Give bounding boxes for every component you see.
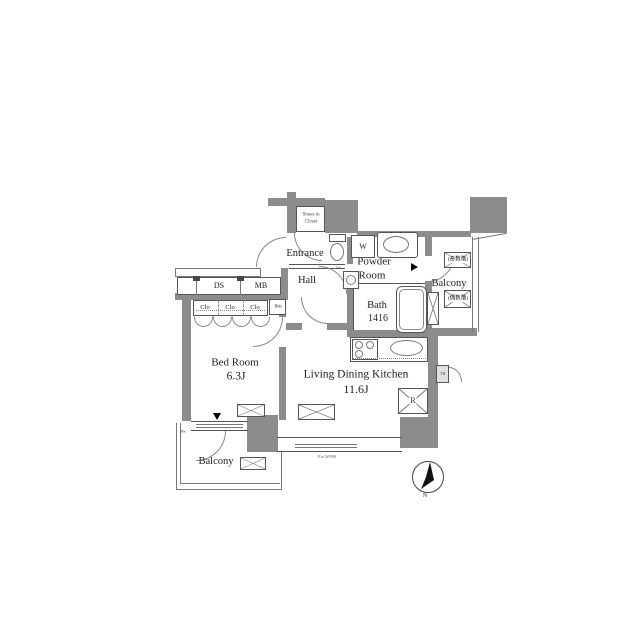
toilet-bowl <box>330 243 344 261</box>
access-marker <box>411 263 418 271</box>
crossed-box <box>237 404 265 417</box>
washbasin-bowl <box>346 275 356 285</box>
wall <box>281 268 288 300</box>
stove-burner <box>355 341 363 349</box>
pillar <box>325 200 358 233</box>
cross-mark <box>428 293 438 324</box>
fix-window-label: Fix W990 <box>318 455 336 460</box>
trunk-label: TR <box>440 372 445 376</box>
window-line <box>196 424 243 425</box>
closet-label-1: Clo <box>200 305 209 312</box>
window-line <box>295 447 357 448</box>
counter-edge <box>352 358 426 359</box>
ldk-door-arc <box>301 297 328 324</box>
crossed-box <box>298 404 335 420</box>
cross-mark <box>241 458 265 469</box>
trunk-door-arc <box>449 367 462 382</box>
ldk-label: Living Dining Kitchen <box>304 369 409 381</box>
bedroom-size-label: 6.3J <box>227 371 246 383</box>
toilet-tank <box>329 234 346 242</box>
fridge-label: R <box>409 397 416 405</box>
balcony-rail <box>478 237 479 332</box>
shoes-closet-label-2: Closet <box>305 220 318 225</box>
bath-size-label: 1416 <box>368 314 388 324</box>
cross-mark <box>238 405 264 416</box>
compass-north-label: N <box>423 493 427 499</box>
cross-mark <box>299 405 334 419</box>
balcony-rail <box>180 423 181 484</box>
bath-label: Bath <box>367 301 387 312</box>
balcony-rail <box>176 489 282 490</box>
entrance-label: Entrance <box>286 249 323 260</box>
wall <box>425 237 432 256</box>
pillar <box>247 415 278 452</box>
bath-partition <box>353 283 354 330</box>
kitchen-sink <box>390 340 423 356</box>
post <box>193 276 200 281</box>
balcony-left-label: Balcony <box>199 457 234 468</box>
meter-box-label: MB <box>255 282 267 290</box>
pillar <box>470 197 507 233</box>
stove-burner <box>355 350 363 358</box>
hatch-even-label: (偶数階) <box>448 296 468 302</box>
balcony-rail <box>180 483 280 484</box>
wall <box>287 192 296 233</box>
closet-divider <box>243 300 244 316</box>
wall <box>400 417 438 448</box>
hatch-odd-label: (奇数階) <box>448 257 468 263</box>
window-line <box>196 427 243 428</box>
balcony-right-label: Balcony <box>432 279 467 290</box>
closet-divider <box>218 300 219 316</box>
window-line <box>295 444 357 445</box>
bath-partition <box>353 283 425 284</box>
balcony-hatch <box>240 457 266 470</box>
washer-label: W <box>359 243 367 251</box>
balcony-edge <box>281 452 282 490</box>
duct-space-label: DS <box>214 282 224 290</box>
wall <box>182 300 191 421</box>
closet-label-3: Clo <box>250 305 259 312</box>
powder-room-label-2: Room <box>359 271 386 282</box>
balcony-rail <box>176 423 177 490</box>
pipe-space-label: PS <box>180 430 185 435</box>
wall <box>279 347 286 420</box>
bathtub-inner <box>399 289 424 330</box>
washbasin-label: 1m <box>335 266 341 271</box>
floor-plan: Shoes in Closet DS MB Clo Clo Clo Sto En… <box>0 0 640 640</box>
vanity-sink <box>383 236 409 253</box>
corridor-band <box>175 268 261 277</box>
wall <box>327 323 347 330</box>
bedroom-door-arc <box>253 317 283 347</box>
stove-burner <box>366 341 374 349</box>
closet-label-2: Clo <box>225 305 234 312</box>
ldk-size-label: 11.6J <box>343 383 368 395</box>
bedroom-label: Bed Room <box>211 358 258 369</box>
wall <box>286 323 302 330</box>
hall-label: Hall <box>298 276 316 287</box>
shoes-closet-label-1: Shoes in <box>302 213 319 218</box>
powder-room-label-1: Powder <box>357 257 391 268</box>
compass <box>408 458 448 500</box>
entrance-door-arc <box>256 237 286 267</box>
post <box>237 276 244 281</box>
window-marker <box>213 413 221 420</box>
ladder-box <box>427 292 439 325</box>
balcony-rail <box>472 237 473 332</box>
wall <box>268 198 325 206</box>
storage-label: Sto <box>274 304 281 310</box>
bedroom-window-wall <box>191 421 248 431</box>
